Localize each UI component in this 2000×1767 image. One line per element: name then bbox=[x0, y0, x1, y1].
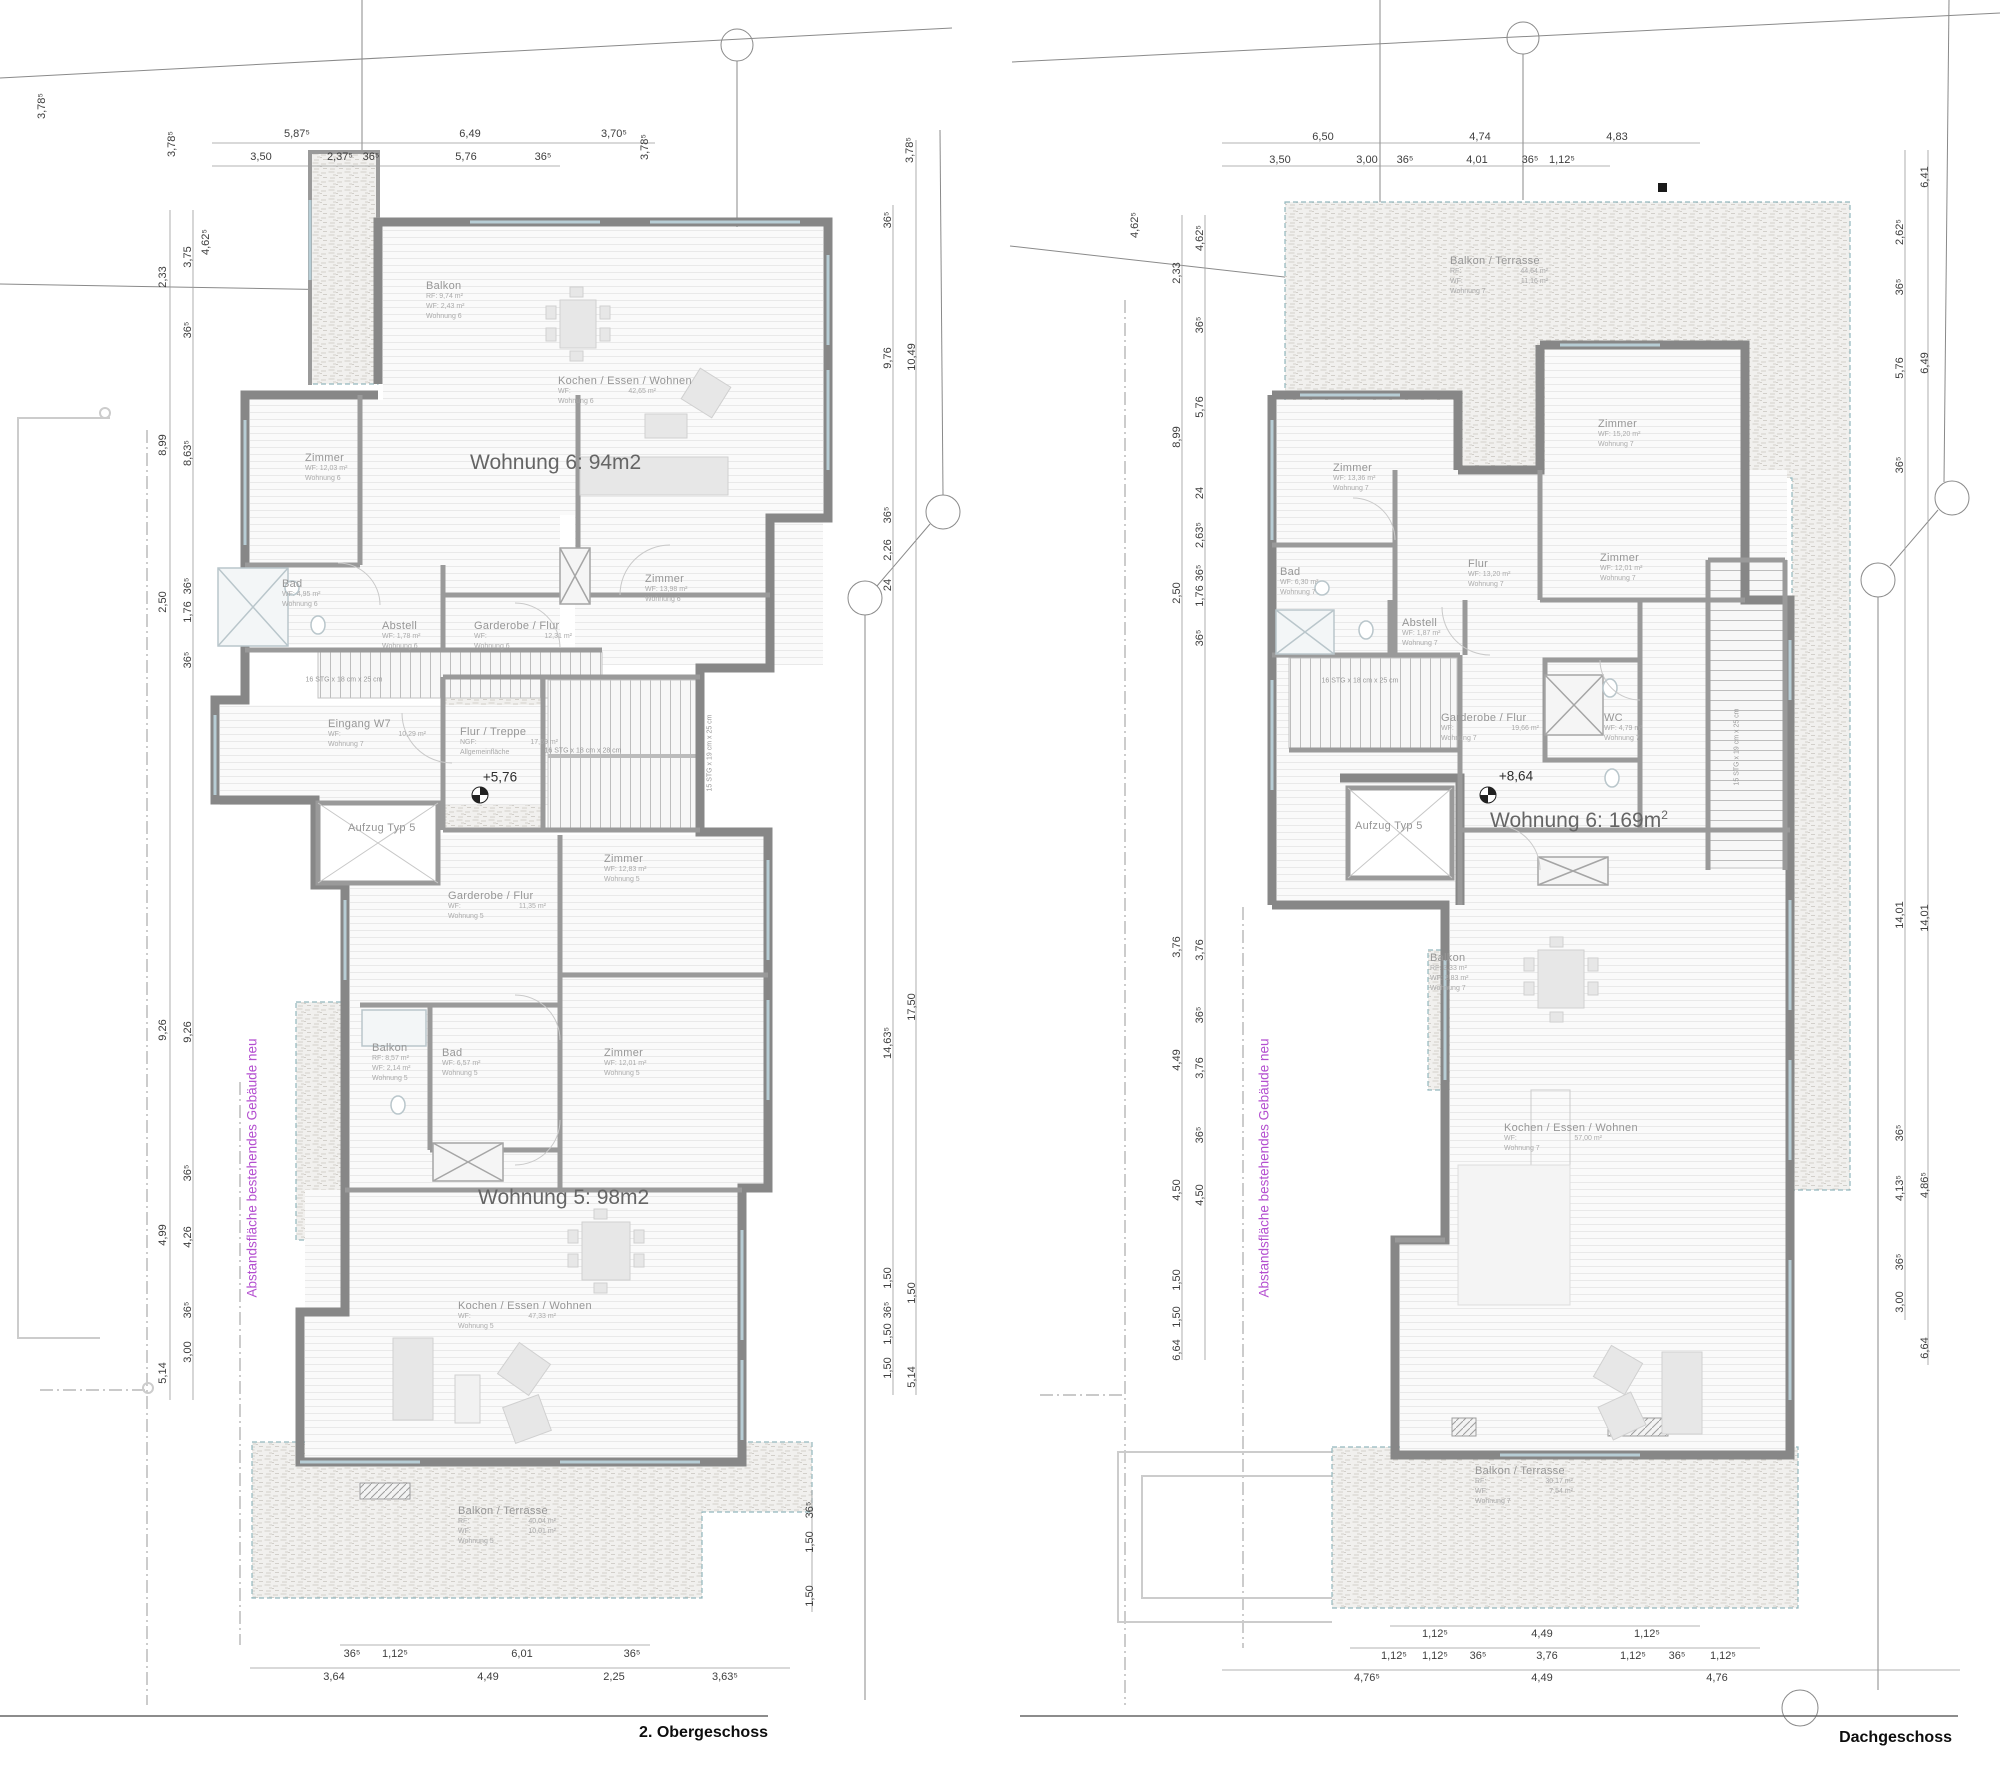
room-area-key: NGF: bbox=[460, 738, 477, 748]
room-area-line: WF:10,29 m² bbox=[328, 730, 426, 740]
room-area-value: 10,01 m² bbox=[528, 1527, 556, 1537]
room-area-value: 10,29 m² bbox=[398, 730, 426, 740]
dimension-label: 3,76 bbox=[1194, 1057, 1206, 1078]
dimension-label: 9,26 bbox=[182, 1021, 194, 1042]
room-area-line: WF: 12,83 m² bbox=[604, 865, 646, 875]
dimension-label: 2,33 bbox=[1171, 262, 1183, 283]
room-title: Zimmer bbox=[604, 1047, 646, 1059]
dimension-label: 36⁵ bbox=[182, 652, 194, 669]
annotation: +5,76 bbox=[483, 770, 517, 785]
room-title: Zimmer bbox=[1333, 462, 1375, 474]
room-label: BalkonRF: 9,74 m²WF: 2,43 m²Wohnung 6 bbox=[426, 280, 465, 322]
room-label: ZimmerWF: 12,83 m²Wohnung 5 bbox=[604, 853, 646, 885]
dimension-label: 36⁵ bbox=[535, 151, 552, 163]
room-label: Eingang W7WF:10,29 m²Wohnung 7 bbox=[328, 718, 426, 750]
room-area-line: Wohnung 6 bbox=[426, 312, 465, 322]
room-label: BalkonRF: 3,33 m²WF: 2,83 m²Wohnung 7 bbox=[1430, 952, 1469, 994]
dimension-label: 6,64 bbox=[1171, 1339, 1183, 1360]
room-label: BalkonRF: 8,57 m²WF: 2,14 m²Wohnung 5 bbox=[372, 1042, 411, 1084]
dimension-label: 4,49 bbox=[1531, 1672, 1552, 1684]
dimension-label: 8,63⁵ bbox=[182, 440, 194, 466]
dimension-label: 10,49 bbox=[906, 343, 918, 371]
room-area-value: 12,31 m² bbox=[544, 632, 572, 642]
dimension-label: 36⁵ bbox=[624, 1648, 641, 1660]
dimension-label: 1,12⁵ bbox=[1620, 1650, 1646, 1662]
dimension-label: 2,26 bbox=[882, 539, 894, 560]
room-label: Balkon / TerrasseRF:30,17 m²WF:7,54 m²Wo… bbox=[1475, 1465, 1573, 1507]
room-area-line: Wohnung 6 bbox=[645, 595, 687, 605]
room-area-value: 42,65 m² bbox=[628, 387, 656, 397]
apartment-label: Wohnung 6: 94m2 bbox=[470, 450, 641, 475]
floor-title-left: 2. Obergeschoss bbox=[639, 1724, 768, 1742]
room-label: BadWF: 6,57 m²Wohnung 5 bbox=[442, 1047, 481, 1079]
room-label: Kochen / Essen / WohnenWF:42,65 m²Wohnun… bbox=[558, 375, 692, 407]
dimension-label: 36⁵ bbox=[1894, 457, 1906, 474]
room-area-line: WF: 13,98 m² bbox=[645, 585, 687, 595]
apartment-label-text: Wohnung 6: 169m bbox=[1490, 809, 1661, 832]
room-area-line: WF: 12,03 m² bbox=[305, 464, 347, 474]
dimension-label: 4,49 bbox=[477, 1671, 498, 1683]
room-area-line: WF: 2,14 m² bbox=[372, 1064, 411, 1074]
dimension-label: 36⁵ bbox=[1669, 1650, 1686, 1662]
dimension-label: 1,50 bbox=[804, 1531, 816, 1552]
room-label: Aufzug Typ 5 bbox=[348, 822, 416, 834]
dimension-label: 14,01 bbox=[1919, 904, 1931, 932]
room-area-line: Wohnung 5 bbox=[458, 1537, 556, 1547]
room-area-line: Wohnung 7 bbox=[1468, 580, 1510, 590]
dimension-label: 36⁵ bbox=[1397, 154, 1414, 166]
dimension-label: 4,99 bbox=[157, 1224, 169, 1245]
dimension-label: 3,78⁵ bbox=[639, 134, 651, 160]
room-area-line: Wohnung 5 bbox=[458, 1322, 592, 1332]
dimension-label: 36⁵ bbox=[1522, 154, 1539, 166]
dimension-label: 6,49 bbox=[459, 128, 480, 140]
room-area-line: WF: 1,87 m² bbox=[1402, 629, 1441, 639]
room-title: Zimmer bbox=[604, 853, 646, 865]
room-title: Abstell bbox=[382, 620, 421, 632]
room-title: Balkon bbox=[426, 280, 465, 292]
room-area-key: WF: bbox=[1441, 724, 1454, 734]
room-label: BadWF: 4,95 m²Wohnung 6 bbox=[282, 578, 321, 610]
dimension-label: 5,76 bbox=[1894, 357, 1906, 378]
room-label: Flur / TreppeNGF:17,69 m²Allgemeinfläche bbox=[460, 726, 558, 758]
room-title: Balkon / Terrasse bbox=[458, 1505, 556, 1517]
dimension-label: 4,76 bbox=[1706, 1672, 1727, 1684]
dimension-label: 3,64 bbox=[323, 1671, 344, 1683]
room-area-line: WF:11,16 m² bbox=[1450, 277, 1548, 287]
dimension-label: 36⁵ bbox=[1194, 565, 1206, 582]
room-title: Bad bbox=[1280, 566, 1319, 578]
dimension-label: 3,63⁵ bbox=[712, 1671, 738, 1683]
labels-layer: BalkonRF: 9,74 m²WF: 2,43 m²Wohnung 6Koc… bbox=[0, 0, 2000, 1767]
dimension-label: 36⁵ bbox=[1194, 1127, 1206, 1144]
room-area-key: WF: bbox=[448, 902, 461, 912]
room-title: Balkon / Terrasse bbox=[1450, 255, 1548, 267]
dimension-label: 4,62⁵ bbox=[200, 229, 212, 255]
dimension-label: 4,49 bbox=[1171, 1049, 1183, 1070]
room-area-value: 47,33 m² bbox=[528, 1312, 556, 1322]
dimension-label: 36⁵ bbox=[882, 507, 894, 524]
dimension-label: 2,50 bbox=[1171, 582, 1183, 603]
room-area-line: WF:42,65 m² bbox=[558, 387, 656, 397]
room-area-line: Wohnung 6 bbox=[558, 397, 692, 407]
room-area-line: Wohnung 7 bbox=[1430, 984, 1469, 994]
room-title: Zimmer bbox=[1598, 418, 1640, 430]
dimension-label: 1,50 bbox=[1171, 1269, 1183, 1290]
room-area-key: WF: bbox=[458, 1527, 471, 1537]
dimension-label: 4,83 bbox=[1606, 131, 1627, 143]
room-area-line: WF:57,00 m² bbox=[1504, 1134, 1602, 1144]
room-label: Garderobe / FlurWF:11,35 m²Wohnung 5 bbox=[448, 890, 546, 922]
annotation: 15 STG x 19 cm x 25 cm bbox=[707, 714, 714, 791]
room-title: Eingang W7 bbox=[328, 718, 426, 730]
dimension-label: 36⁵ bbox=[182, 322, 194, 339]
room-title: Balkon bbox=[1430, 952, 1469, 964]
room-area-line: WF: 6,30 m² bbox=[1280, 578, 1319, 588]
room-area-line: WF: 15,20 m² bbox=[1598, 430, 1640, 440]
room-area-key: WF: bbox=[1475, 1487, 1488, 1497]
room-area-line: WF: 2,43 m² bbox=[426, 302, 465, 312]
dimension-label: 5,76 bbox=[455, 151, 476, 163]
annotation: 15 STG x 19 cm x 25 cm bbox=[1734, 708, 1741, 785]
room-area-key: WF: bbox=[1504, 1134, 1517, 1144]
room-area-line: Wohnung 5 bbox=[448, 912, 546, 922]
room-area-line: WF: 12,01 m² bbox=[604, 1059, 646, 1069]
room-title: Kochen / Essen / Wohnen bbox=[558, 375, 692, 387]
room-area-line: Wohnung 7 bbox=[1402, 639, 1441, 649]
room-label: Aufzug Typ 5 bbox=[1355, 820, 1423, 832]
room-area-value: 7,54 m² bbox=[1549, 1487, 1573, 1497]
dimension-label: 4,62⁵ bbox=[1194, 225, 1206, 251]
room-area-line: Wohnung 7 bbox=[1598, 440, 1640, 450]
abstandsflaeche-note: Abstandsfläche bestehendes Gebäude neu bbox=[245, 1039, 260, 1298]
dimension-label: 36⁵ bbox=[882, 212, 894, 229]
room-title: Garderobe / Flur bbox=[474, 620, 572, 632]
dimension-label: 4,76⁵ bbox=[1354, 1672, 1380, 1684]
dimension-label: 36⁵ bbox=[1894, 279, 1906, 296]
annotation: 16 STG x 18 cm x 28 cm bbox=[544, 748, 621, 755]
dimension-label: 3,00 bbox=[1894, 1291, 1906, 1312]
room-area-key: WF: bbox=[558, 387, 571, 397]
apartment-label-sup: 2 bbox=[1661, 808, 1668, 822]
dimension-label: 3,78⁵ bbox=[36, 93, 48, 119]
room-area-line: Wohnung 7 bbox=[1600, 574, 1642, 584]
dimension-label: 36⁵ bbox=[1894, 1125, 1906, 1142]
room-area-value: 57,00 m² bbox=[1574, 1134, 1602, 1144]
dimension-label: 2,62⁵ bbox=[1894, 219, 1906, 245]
dimension-label: 4,13⁵ bbox=[1894, 1175, 1906, 1201]
room-title: Balkon bbox=[372, 1042, 411, 1054]
room-area-key: WF: bbox=[328, 730, 341, 740]
room-area-line: Allgemeinfläche bbox=[460, 748, 558, 758]
dimension-label: 2,33 bbox=[157, 266, 169, 287]
room-label: Balkon / TerrasseRF:40,04 m²WF:10,01 m²W… bbox=[458, 1505, 556, 1547]
room-title: Garderobe / Flur bbox=[448, 890, 546, 902]
room-area-line: Wohnung 6 bbox=[382, 642, 421, 652]
room-area-value: 44,64 m² bbox=[1520, 267, 1548, 277]
apartment-label-text: Wohnung 6: 94m2 bbox=[470, 451, 641, 474]
dimension-label: 1,50 bbox=[882, 1323, 894, 1344]
room-label: Kochen / Essen / WohnenWF:47,33 m²Wohnun… bbox=[458, 1300, 592, 1332]
room-label: ZimmerWF: 15,20 m²Wohnung 7 bbox=[1598, 418, 1640, 450]
room-area-line: Wohnung 6 bbox=[305, 474, 347, 484]
dimension-label: 9,26 bbox=[157, 1019, 169, 1040]
dimension-label: 5,87⁵ bbox=[284, 128, 310, 140]
dimension-label: 6,49 bbox=[1919, 352, 1931, 373]
room-title: Bad bbox=[442, 1047, 481, 1059]
dimension-label: 4,74 bbox=[1469, 131, 1490, 143]
room-title: Abstell bbox=[1402, 617, 1441, 629]
dimension-label: 1,50 bbox=[804, 1585, 816, 1606]
room-label: BadWF: 6,30 m²Wohnung 7 bbox=[1280, 566, 1319, 598]
room-title: Zimmer bbox=[305, 452, 347, 464]
dimension-label: 1,50 bbox=[882, 1267, 894, 1288]
room-area-key: WF: bbox=[458, 1312, 471, 1322]
dimension-label: 24 bbox=[882, 579, 894, 591]
room-area-line: WF:7,54 m² bbox=[1475, 1487, 1573, 1497]
room-area-key: RF: bbox=[1475, 1477, 1486, 1487]
room-area-line: WF: 4,95 m² bbox=[282, 590, 321, 600]
dimension-label: 36⁵ bbox=[1194, 630, 1206, 647]
room-label: ZimmerWF: 13,98 m²Wohnung 6 bbox=[645, 573, 687, 605]
dimension-label: 3,76 bbox=[1171, 936, 1183, 957]
dimension-label: 36⁵ bbox=[804, 1502, 816, 1519]
apartment-label: Wohnung 6: 169m2 bbox=[1490, 808, 1668, 833]
dimension-label: 9,76 bbox=[882, 347, 894, 368]
room-title: WC bbox=[1604, 712, 1643, 724]
dimension-label: 2,50 bbox=[157, 591, 169, 612]
dimension-label: 5,14 bbox=[157, 1362, 169, 1383]
dimension-label: 36⁵ bbox=[1894, 1254, 1906, 1271]
room-title: Balkon / Terrasse bbox=[1475, 1465, 1573, 1477]
room-area-line: Wohnung 5 bbox=[604, 1069, 646, 1079]
architectural-drawing-sheet: BalkonRF: 9,74 m²WF: 2,43 m²Wohnung 6Koc… bbox=[0, 0, 2000, 1767]
room-label: ZimmerWF: 13,36 m²Wohnung 7 bbox=[1333, 462, 1375, 494]
room-area-line: WF: 12,01 m² bbox=[1600, 564, 1642, 574]
room-area-line: Wohnung 7 bbox=[1475, 1497, 1573, 1507]
dimension-label: 4,49 bbox=[1531, 1628, 1552, 1640]
dimension-label: 24 bbox=[1194, 487, 1206, 499]
room-label: WCWF: 4,79 m²Wohnung 7 bbox=[1604, 712, 1643, 744]
room-area-value: 19,66 m² bbox=[1511, 724, 1539, 734]
room-area-line: WF: 13,36 m² bbox=[1333, 474, 1375, 484]
dimension-label: 6,41 bbox=[1919, 166, 1931, 187]
room-area-line: Wohnung 7 bbox=[1280, 588, 1319, 598]
room-area-line: Wohnung 7 bbox=[1333, 484, 1375, 494]
apartment-label: Wohnung 5: 98m2 bbox=[478, 1185, 649, 1210]
room-title: Kochen / Essen / Wohnen bbox=[1504, 1122, 1638, 1134]
room-area-key: RF: bbox=[458, 1517, 469, 1527]
dimension-label: 3,78⁵ bbox=[166, 131, 178, 157]
dimension-label: 36⁵ bbox=[182, 1165, 194, 1182]
dimension-label: 1,12⁵ bbox=[1549, 154, 1575, 166]
dimension-label: 8,99 bbox=[157, 434, 169, 455]
dimension-label: 1,12⁵ bbox=[1710, 1650, 1736, 1662]
dimension-label: 3,76 bbox=[1536, 1650, 1557, 1662]
dimension-label: 4,01 bbox=[1466, 154, 1487, 166]
dimension-label: 1,12⁵ bbox=[1422, 1650, 1448, 1662]
room-area-line: WF: 6,57 m² bbox=[442, 1059, 481, 1069]
room-area-line: Wohnung 7 bbox=[1450, 287, 1548, 297]
room-area-line: RF: 8,57 m² bbox=[372, 1054, 411, 1064]
room-label: ZimmerWF: 12,03 m²Wohnung 6 bbox=[305, 452, 347, 484]
annotation: 16 STG x 18 cm x 25 cm bbox=[1321, 678, 1398, 685]
room-area-line: Wohnung 5 bbox=[442, 1069, 481, 1079]
room-area-line: Wohnung 5 bbox=[604, 875, 646, 885]
dimension-label: 36⁵ bbox=[1470, 1650, 1487, 1662]
annotation: +8,64 bbox=[1499, 769, 1533, 784]
room-area-line: RF:44,64 m² bbox=[1450, 267, 1548, 277]
room-area-line: WF:12,31 m² bbox=[474, 632, 572, 642]
dimension-label: 3,76 bbox=[1194, 939, 1206, 960]
room-label: ZimmerWF: 12,01 m²Wohnung 7 bbox=[1600, 552, 1642, 584]
dimension-label: 1,50 bbox=[882, 1357, 894, 1378]
room-label: AbstellWF: 1,87 m²Wohnung 7 bbox=[1402, 617, 1441, 649]
room-label: Balkon / TerrasseRF:44,64 m²WF:11,16 m²W… bbox=[1450, 255, 1548, 297]
room-area-line: Wohnung 7 bbox=[1604, 734, 1643, 744]
dimension-label: 36⁵ bbox=[344, 1648, 361, 1660]
abstandsflaeche-note: Abstandsfläche bestehendes Gebäude neu bbox=[1257, 1039, 1272, 1298]
floor-title-right: Dachgeschoss bbox=[1839, 1729, 1952, 1747]
dimension-label: 14,63⁵ bbox=[882, 1027, 894, 1059]
dimension-label: 36⁵ bbox=[182, 1302, 194, 1319]
room-area-key: RF: bbox=[1450, 267, 1461, 277]
room-title: Aufzug Typ 5 bbox=[1355, 820, 1423, 832]
room-title: Bad bbox=[282, 578, 321, 590]
room-area-value: 30,17 m² bbox=[1545, 1477, 1573, 1487]
room-area-line: WF:19,66 m² bbox=[1441, 724, 1539, 734]
dimension-label: 36⁵ bbox=[1194, 1007, 1206, 1024]
room-area-line: WF:10,01 m² bbox=[458, 1527, 556, 1537]
dimension-label: 3,00 bbox=[182, 1341, 194, 1362]
annotation: 16 STG x 18 cm x 25 cm bbox=[305, 677, 382, 684]
dimension-label: 8,99 bbox=[1171, 426, 1183, 447]
room-area-line: WF: 13,20 m² bbox=[1468, 570, 1510, 580]
room-area-line: RF:40,04 m² bbox=[458, 1517, 556, 1527]
dimension-label: 4,50 bbox=[1171, 1179, 1183, 1200]
room-label: Kochen / Essen / WohnenWF:57,00 m²Wohnun… bbox=[1504, 1122, 1638, 1154]
room-area-line: Wohnung 7 bbox=[328, 740, 426, 750]
room-title: Garderobe / Flur bbox=[1441, 712, 1539, 724]
room-area-line: Wohnung 6 bbox=[474, 642, 572, 652]
room-area-line: NGF:17,69 m² bbox=[460, 738, 558, 748]
dimension-label: 36⁵ bbox=[182, 578, 194, 595]
dimension-label: 4,26 bbox=[182, 1226, 194, 1247]
room-area-value: 11,16 m² bbox=[1521, 277, 1548, 287]
dimension-label: 1,76 bbox=[1194, 585, 1206, 606]
room-label: ZimmerWF: 12,01 m²Wohnung 5 bbox=[604, 1047, 646, 1079]
dimension-label: 2,25 bbox=[603, 1671, 624, 1683]
room-area-key: WF: bbox=[1450, 277, 1463, 287]
room-area-line: WF: 2,83 m² bbox=[1430, 974, 1469, 984]
dimension-label: 2,63⁵ bbox=[1194, 522, 1206, 548]
dimension-label: 1,50 bbox=[906, 1282, 918, 1303]
dimension-label: 17,50 bbox=[906, 993, 918, 1021]
dimension-label: 3,75 bbox=[182, 246, 194, 267]
room-label: Garderobe / FlurWF:12,31 m²Wohnung 6 bbox=[474, 620, 572, 652]
apartment-label-text: Wohnung 5: 98m2 bbox=[478, 1186, 649, 1209]
dimension-label: 1,12⁵ bbox=[1422, 1628, 1448, 1640]
dimension-label: 6,01 bbox=[511, 1648, 532, 1660]
room-area-value: 17,69 m² bbox=[530, 738, 558, 748]
room-area-key: WF: bbox=[474, 632, 487, 642]
room-title: Zimmer bbox=[1600, 552, 1642, 564]
dimension-label: 6,50 bbox=[1312, 131, 1333, 143]
dimension-label: 3,70⁵ bbox=[601, 128, 627, 140]
room-title: Flur bbox=[1468, 558, 1510, 570]
room-area-line: RF: 3,33 m² bbox=[1430, 964, 1469, 974]
room-area-line: WF: 4,79 m² bbox=[1604, 724, 1643, 734]
room-area-value: 40,04 m² bbox=[528, 1517, 556, 1527]
dimension-label: 4,50 bbox=[1194, 1184, 1206, 1205]
dimension-label: 36⁵ bbox=[1194, 317, 1206, 334]
dimension-label: 1,12⁵ bbox=[1381, 1650, 1407, 1662]
dimension-label: 3,50 bbox=[250, 151, 271, 163]
room-area-line: WF:47,33 m² bbox=[458, 1312, 556, 1322]
room-area-line: WF: 1,78 m² bbox=[382, 632, 421, 642]
room-label: Garderobe / FlurWF:19,66 m²Wohnung 7 bbox=[1441, 712, 1539, 744]
dimension-label: 5,14 bbox=[906, 1366, 918, 1387]
dimension-label: 3,78⁵ bbox=[904, 137, 916, 163]
room-label: AbstellWF: 1,78 m²Wohnung 6 bbox=[382, 620, 421, 652]
room-area-line: Wohnung 7 bbox=[1504, 1144, 1638, 1154]
dimension-label: 1,12⁵ bbox=[382, 1648, 408, 1660]
room-area-line: Wohnung 7 bbox=[1441, 734, 1539, 744]
dimension-label: 14,01 bbox=[1894, 901, 1906, 929]
room-title: Kochen / Essen / Wohnen bbox=[458, 1300, 592, 1312]
room-area-line: RF:30,17 m² bbox=[1475, 1477, 1573, 1487]
dimension-label: 1,12⁵ bbox=[1634, 1628, 1660, 1640]
room-area-line: WF:11,35 m² bbox=[448, 902, 546, 912]
dimension-label: 3,00 bbox=[1356, 154, 1377, 166]
dimension-label: 4,62⁵ bbox=[1129, 212, 1141, 238]
room-label: FlurWF: 13,20 m²Wohnung 7 bbox=[1468, 558, 1510, 590]
dimension-label: 2,37⁵ bbox=[327, 151, 353, 163]
room-title: Flur / Treppe bbox=[460, 726, 558, 738]
room-area-line: RF: 9,74 m² bbox=[426, 292, 465, 302]
room-title: Aufzug Typ 5 bbox=[348, 822, 416, 834]
dimension-label: 5,76 bbox=[1194, 396, 1206, 417]
room-area-line: Wohnung 5 bbox=[372, 1074, 411, 1084]
room-area-value: 11,35 m² bbox=[519, 902, 546, 912]
dimension-label: 4,86⁵ bbox=[1919, 1172, 1931, 1198]
room-title: Zimmer bbox=[645, 573, 687, 585]
dimension-label: 36⁵ bbox=[882, 1302, 894, 1319]
dimension-label: 3,50 bbox=[1269, 154, 1290, 166]
dimension-label: 1,76 bbox=[182, 601, 194, 622]
dimension-label: 6,64 bbox=[1919, 1337, 1931, 1358]
dimension-label: 1,50 bbox=[1171, 1306, 1183, 1327]
dimension-label: 36⁵ bbox=[363, 151, 380, 163]
room-area-line: Wohnung 6 bbox=[282, 600, 321, 610]
